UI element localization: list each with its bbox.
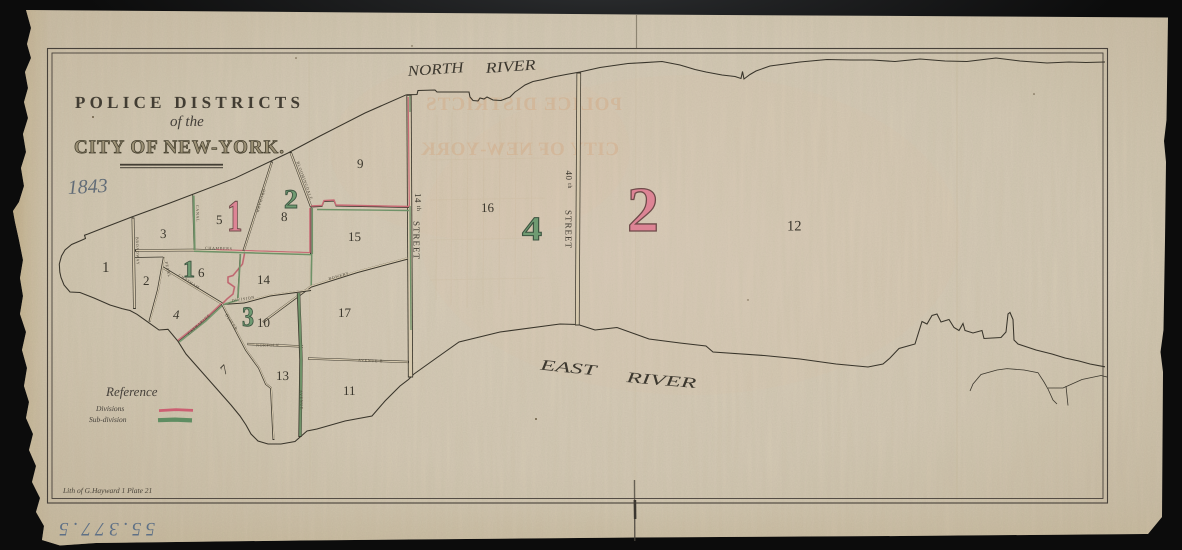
- svg-text:16: 16: [481, 200, 495, 215]
- svg-text:1: 1: [102, 260, 110, 276]
- svg-text:1843: 1843: [67, 175, 108, 199]
- svg-text:3: 3: [242, 302, 254, 333]
- svg-text:Lith of G.Hayward 1 Plate 21: Lith of G.Hayward 1 Plate 21: [62, 486, 152, 495]
- svg-text:12: 12: [787, 219, 802, 235]
- svg-text:11: 11: [343, 383, 356, 398]
- svg-text:STREET: STREET: [564, 210, 574, 249]
- svg-text:9: 9: [357, 156, 364, 171]
- svg-text:4: 4: [173, 307, 180, 322]
- svg-text:15: 15: [348, 229, 361, 244]
- svg-text:17: 17: [338, 305, 352, 320]
- svg-text:CITY OF NEW-YORK.: CITY OF NEW-YORK.: [74, 137, 284, 158]
- svg-text:Reference: Reference: [105, 384, 158, 399]
- svg-text:4: 4: [522, 211, 542, 248]
- svg-text:CHAMBERS: CHAMBERS: [205, 245, 233, 250]
- svg-text:14: 14: [257, 272, 271, 287]
- svg-text:6: 6: [198, 265, 205, 280]
- svg-text:of the: of the: [170, 114, 204, 130]
- svg-text:13: 13: [276, 368, 289, 383]
- svg-text:3: 3: [160, 226, 167, 241]
- svg-text:NORFOLK: NORFOLK: [256, 343, 280, 348]
- svg-text:AVENUE B: AVENUE B: [358, 358, 383, 364]
- svg-text:Divisions: Divisions: [95, 404, 124, 413]
- svg-text:Sub-division: Sub-division: [89, 415, 127, 424]
- svg-text:AVENUE: AVENUE: [299, 390, 305, 410]
- svg-text:10: 10: [257, 315, 270, 330]
- svg-text:POLICE DISTRICTS: POLICE DISTRICTS: [426, 94, 622, 115]
- svg-text:1: 1: [227, 191, 243, 241]
- svg-text:1: 1: [183, 257, 195, 283]
- svg-text:CANAL: CANAL: [195, 205, 201, 222]
- svg-text:BROADWAY: BROADWAY: [135, 237, 141, 266]
- svg-text:CITY OF NEW-YORK: CITY OF NEW-YORK: [421, 139, 619, 160]
- svg-text:2: 2: [143, 273, 150, 288]
- svg-text:STREET: STREET: [412, 221, 422, 260]
- svg-text:5: 5: [216, 212, 223, 227]
- svg-text:2: 2: [627, 174, 659, 245]
- svg-text:2: 2: [284, 184, 298, 214]
